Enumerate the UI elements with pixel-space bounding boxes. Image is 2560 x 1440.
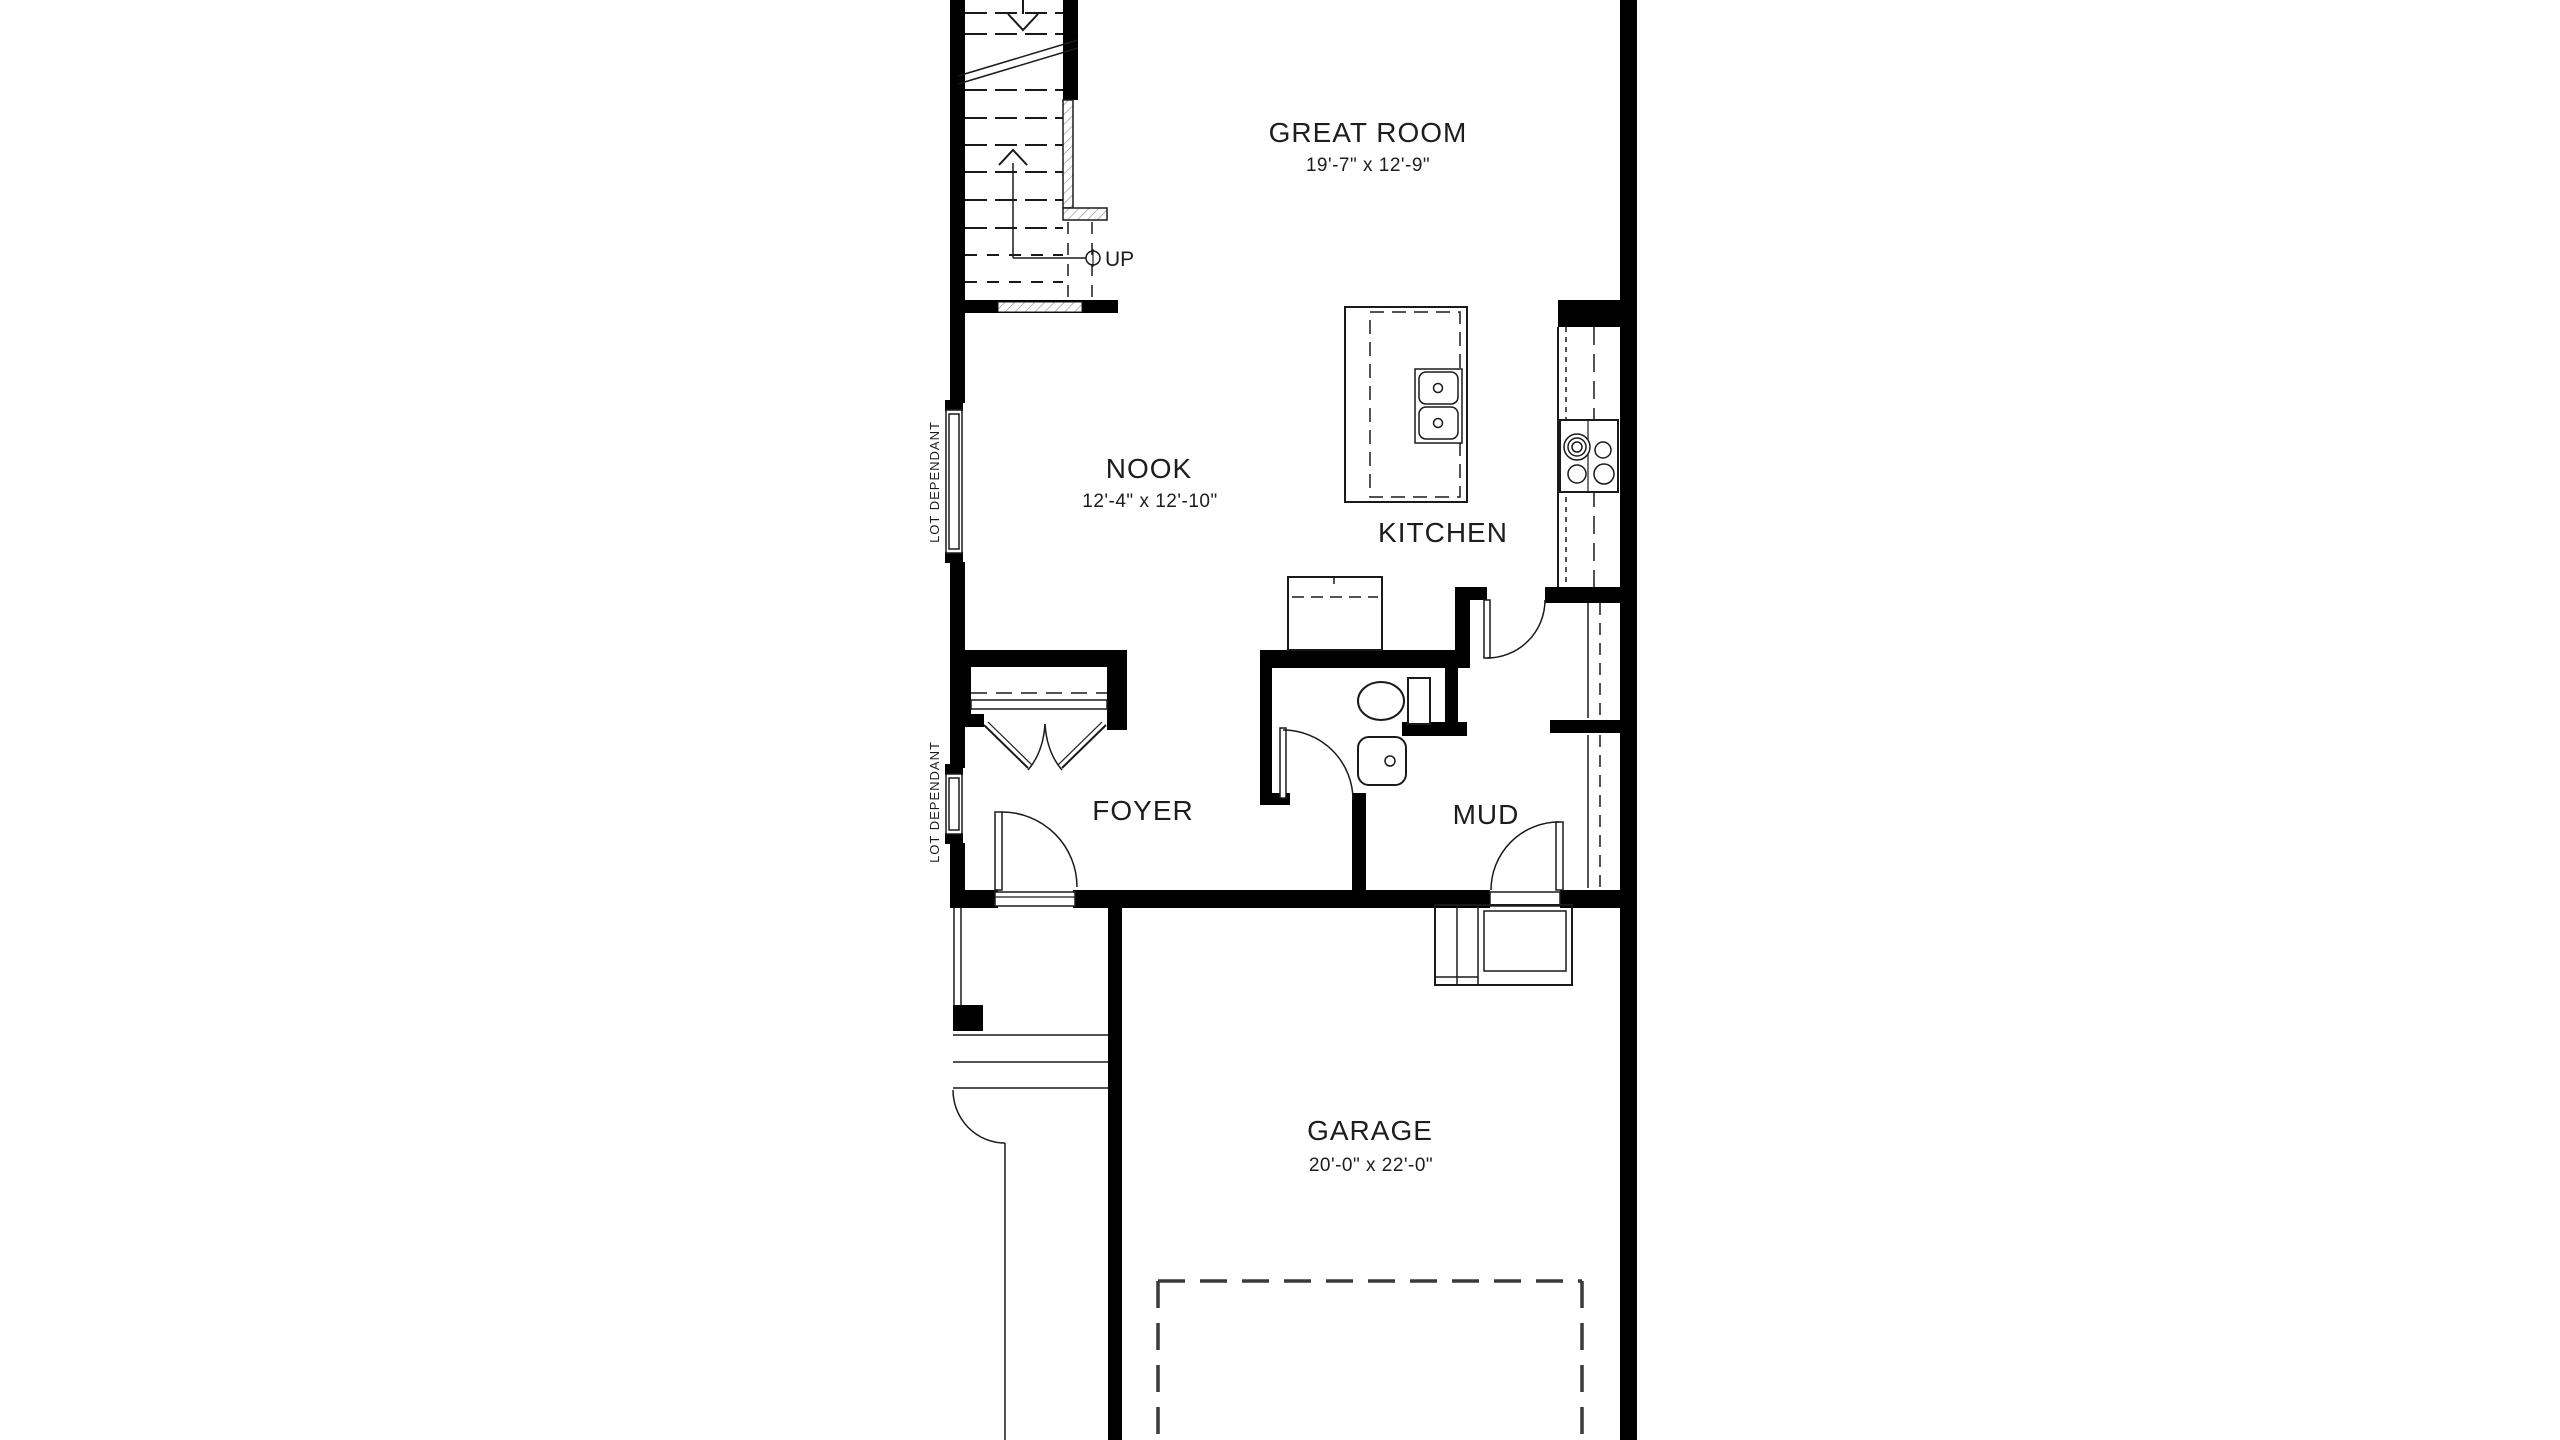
porch-post — [953, 1005, 983, 1031]
hall-divider-wall — [1352, 793, 1366, 890]
staircase: UP — [958, 0, 1134, 312]
bottom-wall-left — [950, 890, 998, 908]
mud-label: MUD — [1453, 799, 1520, 830]
nook: NOOK 12'-4" x 12'-10" — [1082, 453, 1217, 512]
foyer: FOYER — [971, 693, 1194, 906]
powder-room — [1280, 678, 1430, 800]
powder-door — [1280, 728, 1353, 800]
right-wall — [1620, 0, 1637, 1440]
stair-down-arrow-icon — [1008, 0, 1038, 30]
walls — [950, 0, 1637, 1440]
stair-railing-cap — [1063, 208, 1107, 220]
closet-top-wall — [950, 650, 1127, 667]
powder-right-wall — [1445, 668, 1458, 722]
kitchen-south-stub-vert — [1455, 598, 1470, 668]
bottom-wall-mid — [1073, 890, 1490, 908]
walkway-curve — [953, 1090, 1005, 1143]
stair-up-label: UP — [1105, 248, 1134, 271]
garage-parking-pad — [1158, 1281, 1582, 1440]
great-room-label: GREAT ROOM — [1269, 117, 1468, 148]
stair-railing — [1063, 100, 1073, 208]
window-lot-dependant-1: LOT DEPENDANT — [927, 400, 963, 563]
foyer-closet — [971, 693, 1107, 770]
kitchen-mud-door — [1484, 600, 1545, 658]
garage-dims: 20'-0" x 22'-0" — [1309, 1155, 1433, 1176]
lot-dependant-label-2: LOT DEPENDANT — [927, 741, 942, 863]
closet-right-jamb — [1107, 667, 1127, 730]
garage-steps — [1435, 905, 1572, 985]
front-door — [995, 812, 1077, 906]
floor-plan-page: UP LOT DEPENDANT LOT DEPENDANT GREAT ROO… — [0, 0, 2560, 1440]
powder-left-wall — [1260, 668, 1272, 805]
mud-room: MUD — [1453, 603, 1600, 906]
stair-opening-hatch — [998, 302, 1082, 312]
floor-plan-canvas: UP LOT DEPENDANT LOT DEPENDANT GREAT ROO… — [0, 0, 2560, 1440]
closet-bifold-doors — [984, 722, 1106, 770]
stair-treads — [965, 13, 1063, 282]
great-room: GREAT ROOM 19'-7" x 12'-9" — [1269, 117, 1468, 176]
great-room-dims: 19'-7" x 12'-9" — [1306, 155, 1430, 176]
left-wall-top — [950, 0, 965, 403]
mud-bench — [1588, 603, 1600, 888]
porch — [953, 908, 1108, 1440]
foyer-label: FOYER — [1092, 795, 1193, 826]
island-sink — [1415, 369, 1462, 443]
kitchen: KITCHEN — [1288, 307, 1618, 658]
mud-bench-stub — [1550, 720, 1620, 733]
powder-sink — [1358, 737, 1406, 785]
kitchen-island — [1345, 307, 1467, 502]
powder-top-wall — [1260, 650, 1467, 668]
nook-dims: 12'-4" x 12'-10" — [1082, 491, 1217, 512]
garage-label: GARAGE — [1307, 1115, 1433, 1146]
lot-dependant-label-1: LOT DEPENDANT — [927, 421, 942, 543]
stair-break-line — [958, 40, 1078, 84]
kitchen-label: KITCHEN — [1378, 517, 1508, 548]
cooktop — [1560, 420, 1618, 492]
fridge — [1288, 577, 1382, 650]
nook-label: NOOK — [1106, 453, 1192, 484]
garage-left-wall — [1108, 905, 1122, 1440]
garage: GARAGE 20'-0" x 22'-0" — [1158, 905, 1582, 1440]
closet-left-foot — [960, 714, 984, 727]
mud-garage-door — [1490, 822, 1563, 906]
toilet — [1358, 678, 1430, 724]
